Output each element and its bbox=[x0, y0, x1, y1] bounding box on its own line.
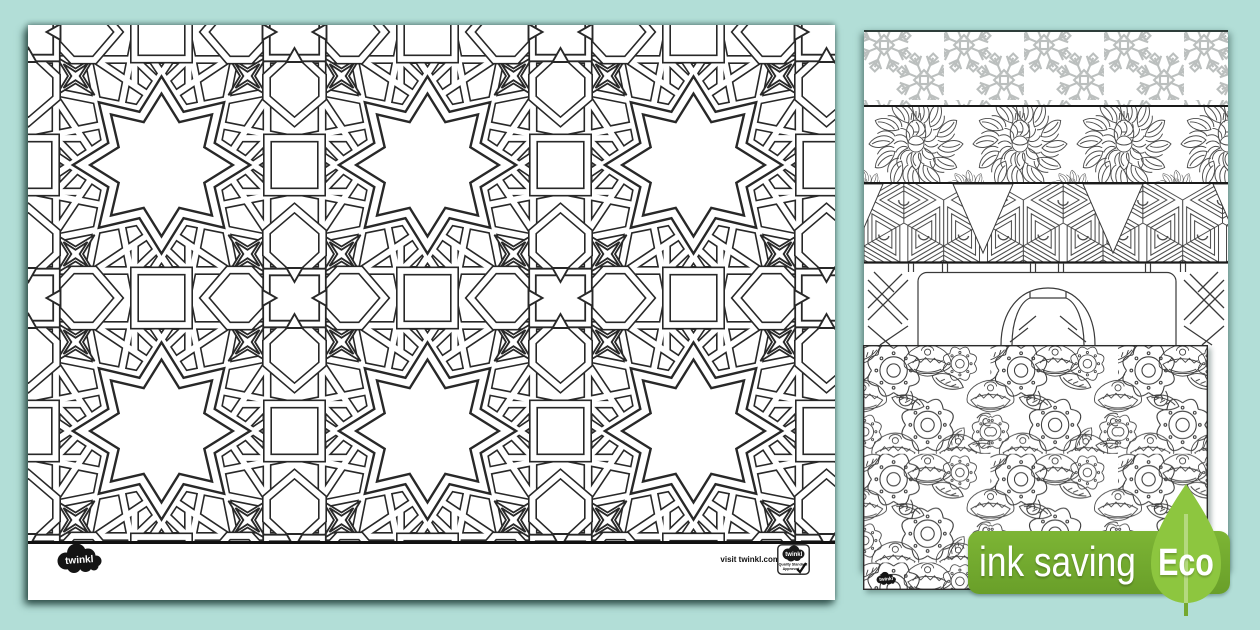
svg-text:twinkl: twinkl bbox=[65, 554, 94, 567]
svg-text:twinkl: twinkl bbox=[785, 552, 802, 558]
